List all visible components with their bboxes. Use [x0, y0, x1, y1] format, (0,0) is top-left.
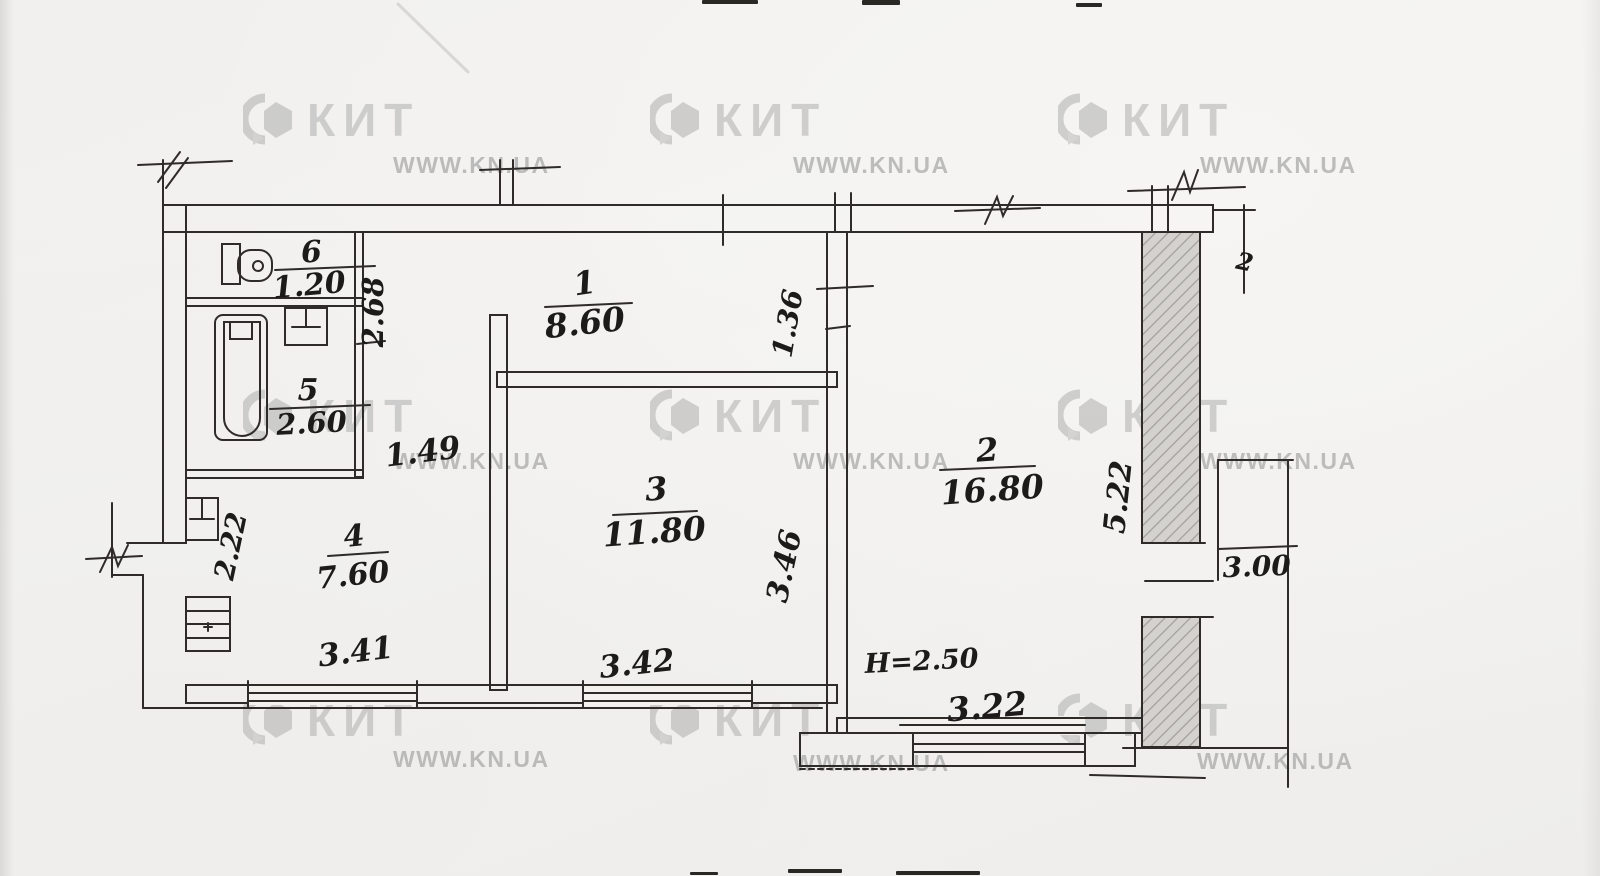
room-3-number: 3: [644, 469, 669, 508]
dim-tick: [817, 286, 873, 289]
dim-bath-depth: 2.68: [356, 277, 390, 349]
room-2-area: 16.80: [939, 466, 1045, 512]
wall-room2-left: [827, 232, 847, 733]
plan-labels: 6 1.20 5 2.60 1 8.60 3 11.80 2 16.80 4 7…: [207, 234, 1292, 729]
kitchen-sink-icon: [186, 498, 218, 540]
room-4-number: 4: [342, 518, 366, 555]
room-2-number: 2: [974, 430, 1000, 470]
balcony: [800, 733, 1135, 769]
dim-room3-window: 3.42: [598, 642, 677, 686]
room-1-number: 1: [571, 263, 598, 304]
dim-kitchen-window: 3.41: [316, 630, 395, 675]
room-6-number: 6: [300, 234, 323, 270]
dim-hall-end: 1.36: [765, 287, 809, 360]
dim-edge-mark: 2: [1233, 246, 1256, 278]
wall-left: [163, 205, 186, 543]
stove-icon: [186, 597, 230, 651]
dim-hall-niche: 1.49: [383, 430, 462, 475]
section-mark: [1172, 170, 1198, 200]
room-3-area: 11.80: [601, 508, 707, 554]
wall-bath-right: [355, 232, 363, 477]
room-5-area: 2.60: [274, 404, 347, 442]
dim-right-annex: 3.00: [1222, 549, 1292, 584]
wall-left-notch: [86, 503, 822, 708]
room-4-area: 7.60: [315, 554, 391, 596]
dim-kitchen-niche: 2.22: [207, 509, 254, 584]
window-room4: [248, 681, 417, 707]
scanned-floor-plan-page: КИТ КИТ КИТ WWW.KN.UA WWW.KN.UA WWW.KN.U…: [0, 0, 1600, 876]
hatched-wall-right: [1142, 232, 1213, 747]
room-6-area: 1.20: [271, 265, 347, 306]
bathtub-icon: [215, 315, 267, 440]
dim-room3-width: 3.46: [760, 527, 809, 606]
room-1-area: 8.60: [542, 299, 627, 346]
washbasin-icon: [285, 308, 327, 345]
dim-room2-window: 3.22: [945, 684, 1028, 730]
wall-bath-bottom: [186, 470, 363, 478]
dim-room2-depth: 5.22: [1097, 459, 1139, 535]
wall-top: [163, 205, 1213, 232]
dim-ceiling-height: H=2.50: [863, 643, 980, 680]
toilet-icon: [222, 244, 272, 284]
wall-hall-room3: [497, 372, 837, 387]
room-5-number: 5: [298, 373, 319, 408]
wall-bottom: [186, 681, 837, 707]
floor-plan: 6 1.20 5 2.60 1 8.60 3 11.80 2 16.80 4 7…: [0, 0, 1600, 876]
